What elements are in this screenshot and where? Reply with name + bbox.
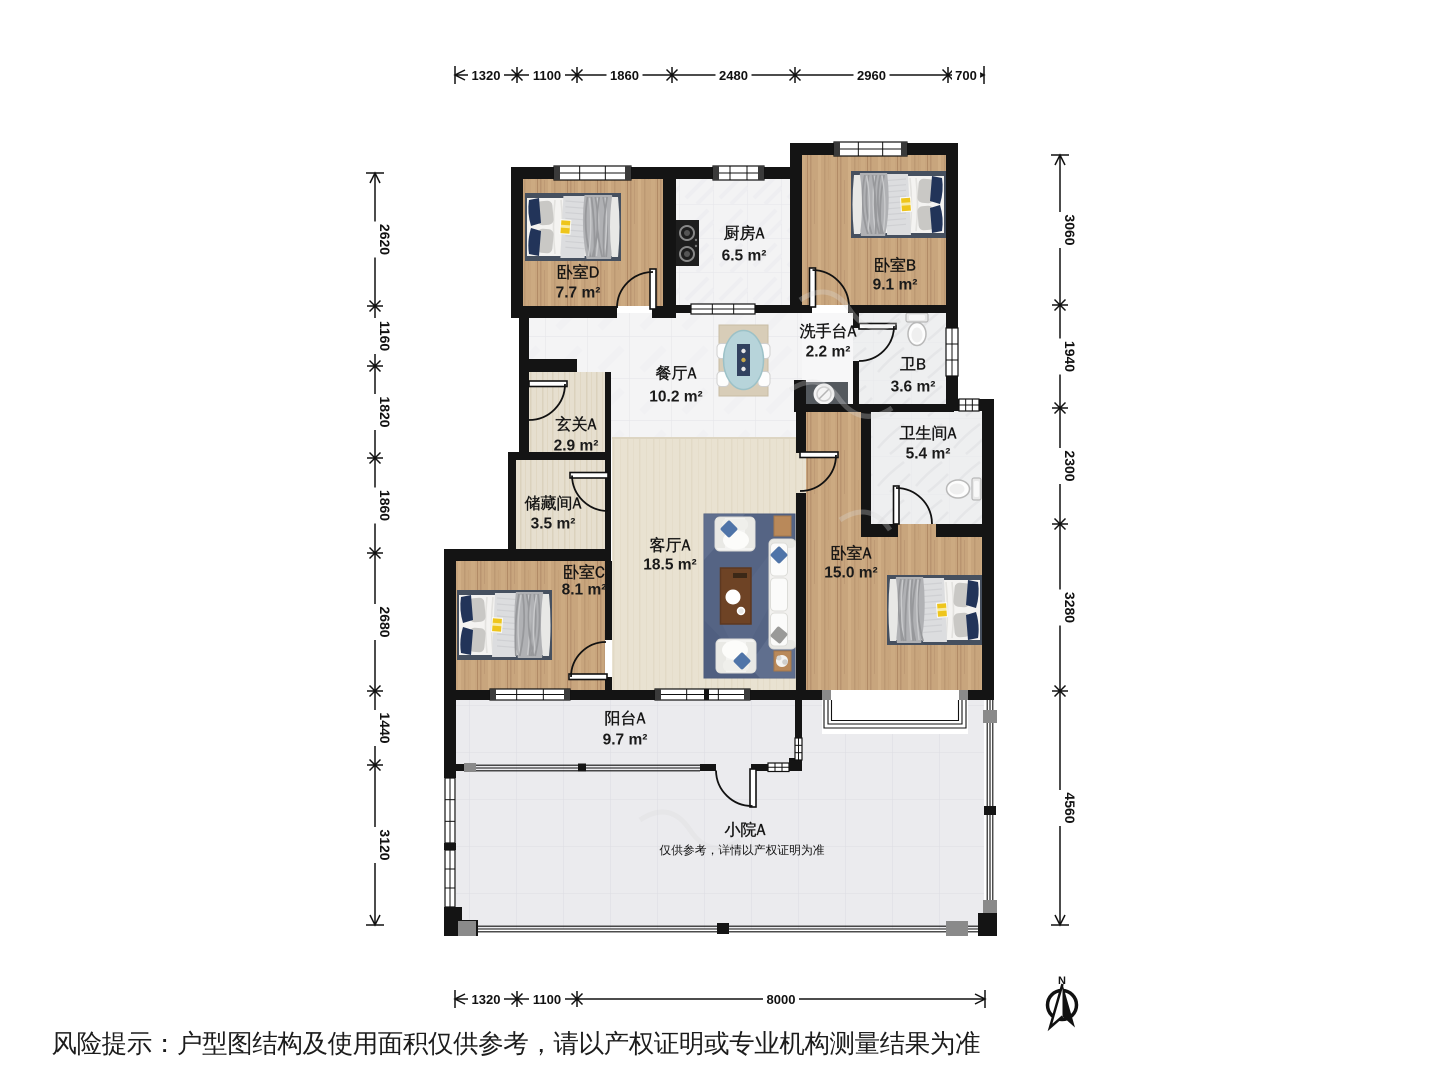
svg-text:1860: 1860 [377,490,393,521]
svg-text:10.2 m²: 10.2 m² [649,389,702,406]
svg-text:700: 700 [955,68,977,83]
svg-text:18.5 m²: 18.5 m² [643,557,696,574]
svg-text:5.4 m²: 5.4 m² [906,446,951,463]
svg-text:1160: 1160 [377,321,393,352]
svg-text:1320: 1320 [472,992,501,1007]
svg-text:2620: 2620 [377,224,393,255]
svg-text:7.7 m²: 7.7 m² [556,285,601,302]
svg-text:1320: 1320 [472,68,501,83]
svg-text:4560: 4560 [1062,792,1078,823]
svg-text:1440: 1440 [377,712,393,743]
svg-text:2960: 2960 [857,68,886,83]
svg-text:3.5 m²: 3.5 m² [531,516,576,533]
svg-text:2480: 2480 [719,68,748,83]
svg-text:1860: 1860 [610,68,639,83]
svg-text:2300: 2300 [1062,450,1078,481]
svg-text:8000: 8000 [767,992,796,1007]
svg-text:1820: 1820 [377,396,393,427]
svg-text:2.9 m²: 2.9 m² [554,438,599,455]
svg-text:2680: 2680 [377,606,393,637]
svg-text:3060: 3060 [1062,214,1078,245]
svg-text:1100: 1100 [533,68,561,83]
svg-text:8.1 m²: 8.1 m² [562,582,607,599]
svg-text:6.5 m²: 6.5 m² [722,248,767,265]
svg-text:2.2 m²: 2.2 m² [806,344,851,361]
svg-text:3280: 3280 [1062,592,1078,623]
svg-text:1100: 1100 [533,992,561,1007]
svg-text:9.7 m²: 9.7 m² [603,732,648,749]
svg-text:9.1 m²: 9.1 m² [873,277,918,294]
svg-text:3.6 m²: 3.6 m² [891,379,936,396]
svg-text:3120: 3120 [377,829,393,860]
svg-text:1940: 1940 [1062,341,1078,372]
svg-text:15.0 m²: 15.0 m² [824,565,877,582]
